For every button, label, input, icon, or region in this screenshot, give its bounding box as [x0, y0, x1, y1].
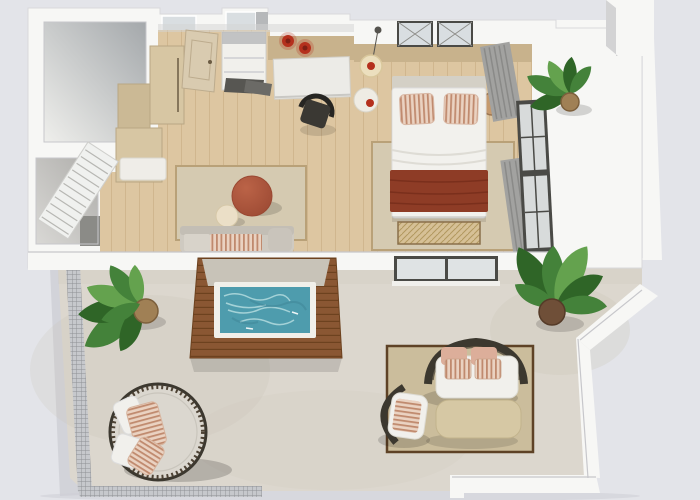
- double-bed: [390, 76, 488, 244]
- striped-seat-cushion: [210, 234, 262, 251]
- bedroom-window: [438, 22, 472, 46]
- kitchen-cabinet: [118, 84, 150, 130]
- ceiling-light-core: [303, 46, 308, 51]
- kitchen-counter: [120, 158, 166, 180]
- striped-pillow: [443, 93, 478, 124]
- indoor-sofa: [180, 226, 294, 252]
- plant-pot: [134, 299, 158, 323]
- wardrobe-cabinet: [150, 46, 184, 124]
- terrace-parapet-step: [450, 475, 464, 498]
- door-sill: [392, 281, 500, 286]
- interior-unit: [28, 8, 642, 286]
- plant-pot: [539, 299, 565, 325]
- floor-plan-render: [0, 0, 700, 500]
- striped-pillow: [399, 93, 435, 125]
- red-vase: [366, 99, 374, 107]
- deck-concrete-slab: [202, 259, 330, 286]
- bed-bench: [398, 222, 480, 244]
- nightstand-left: [354, 88, 378, 112]
- outdoor-sofa: [428, 342, 524, 398]
- armchair-cushion: [392, 398, 422, 433]
- glass-pane: [448, 259, 495, 279]
- pendant-lamp-core: [367, 62, 375, 70]
- terrace-parapet-bottom: [452, 475, 600, 493]
- striped-pillow: [475, 359, 501, 379]
- desk: [273, 57, 350, 100]
- deck-shadow: [190, 358, 342, 372]
- top-right-wall-block: [606, 0, 654, 56]
- floor-plan-canvas: [0, 0, 700, 500]
- terrace-railing-bottom: [78, 486, 262, 497]
- bed-throw: [390, 170, 488, 212]
- side-table: [216, 205, 238, 227]
- bedroom-window: [398, 22, 432, 46]
- plant-pot: [561, 93, 579, 111]
- glass-pane: [397, 259, 445, 279]
- kitchen-floor: [100, 172, 158, 258]
- pool-deck: [190, 258, 342, 372]
- striped-pillow: [445, 359, 471, 379]
- bed-shadow: [392, 216, 486, 222]
- ceiling-rose: [375, 27, 382, 34]
- niche-shadow: [222, 32, 266, 44]
- ceiling-light-core: [286, 39, 291, 44]
- entry-door: [182, 30, 218, 92]
- outdoor-lounge-set: [378, 342, 533, 452]
- door-handle: [208, 60, 212, 64]
- sliding-glass-door: [392, 256, 500, 286]
- utility-niche: [80, 216, 100, 246]
- terracotta-pouf: [232, 176, 272, 216]
- coffee-table: [436, 400, 521, 438]
